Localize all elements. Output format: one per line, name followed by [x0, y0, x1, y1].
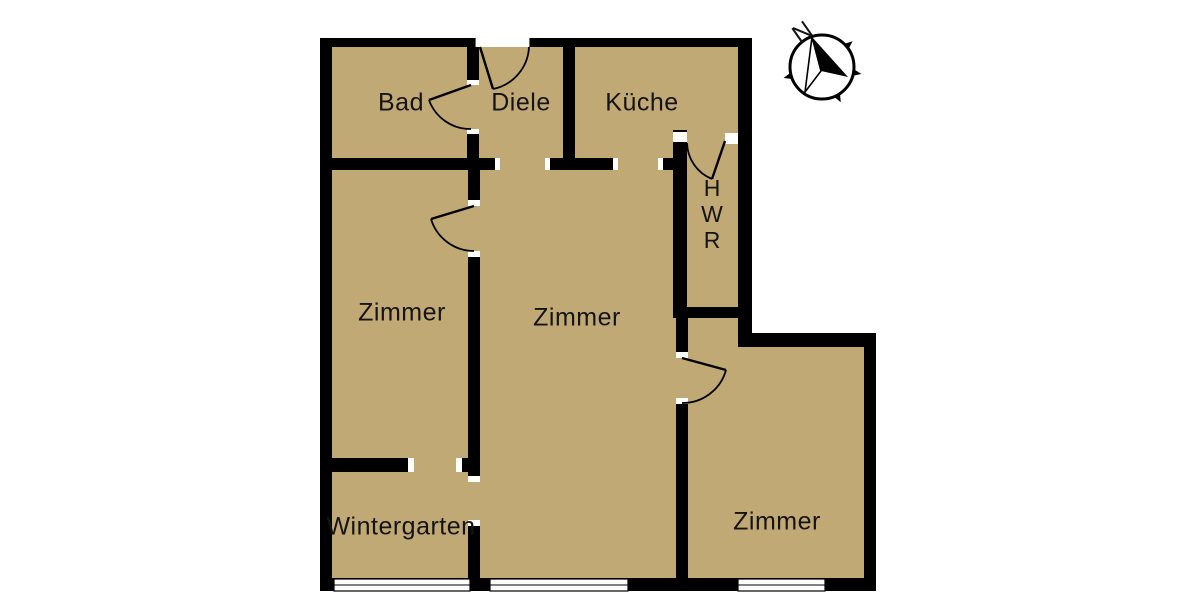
floor-plan-drawing: N: [0, 0, 1200, 600]
opening-jamb: [408, 458, 414, 472]
room-floor-zimmer-right: [688, 347, 864, 578]
room-label-wintergarten: Wintergarten: [326, 513, 475, 542]
opening-jamb: [456, 458, 462, 472]
opening-jamb: [468, 476, 480, 482]
room-label-zimmer-right: Zimmer: [733, 508, 821, 537]
opening-jamb: [613, 158, 618, 170]
wall-diele-kueche: [563, 47, 575, 158]
windows: [334, 579, 825, 591]
room-label-zimmer-center: Zimmer: [533, 304, 621, 333]
opening-jamb: [676, 352, 688, 358]
room-label-diele: Diele: [491, 89, 550, 118]
entrance-jamb-right: [529, 38, 531, 47]
entrance-opening: [474, 38, 531, 47]
room-label-bad: Bad: [378, 89, 424, 118]
room-label-hwr: HWR: [701, 175, 723, 253]
opening-jamb: [495, 158, 500, 170]
opening-zimmer-left-door: [468, 206, 480, 251]
room-floor-zimmer-center: [480, 170, 676, 578]
opening-jamb: [545, 158, 550, 170]
compass-tick: [844, 41, 853, 49]
opening-bad-door: [467, 85, 479, 129]
opening-zimmer-wintergarten: [414, 458, 456, 472]
room-label-kueche: Küche: [605, 89, 678, 118]
opening-diele-zimmer: [500, 158, 545, 170]
compass-tick: [853, 69, 862, 76]
opening-kueche-zimmer: [618, 158, 658, 170]
opening-jamb: [658, 158, 663, 170]
opening-jamb: [725, 133, 738, 144]
opening-jamb: [673, 132, 687, 142]
wall-hwr-bottom: [673, 307, 752, 318]
opening-jamb: [468, 200, 480, 206]
entrance-jamb-left: [474, 38, 476, 47]
floor-plan-canvas: N Bad Diele Küche HWR Zimmer Zimmer Zimm…: [0, 0, 1200, 600]
compass: N: [784, 16, 862, 103]
opening-jamb: [467, 80, 479, 85]
opening-zimmer-right-door: [676, 358, 688, 398]
wall-hwr-left: [673, 130, 687, 318]
room-label-zimmer-left: Zimmer: [358, 299, 446, 328]
opening-jamb: [468, 251, 480, 257]
